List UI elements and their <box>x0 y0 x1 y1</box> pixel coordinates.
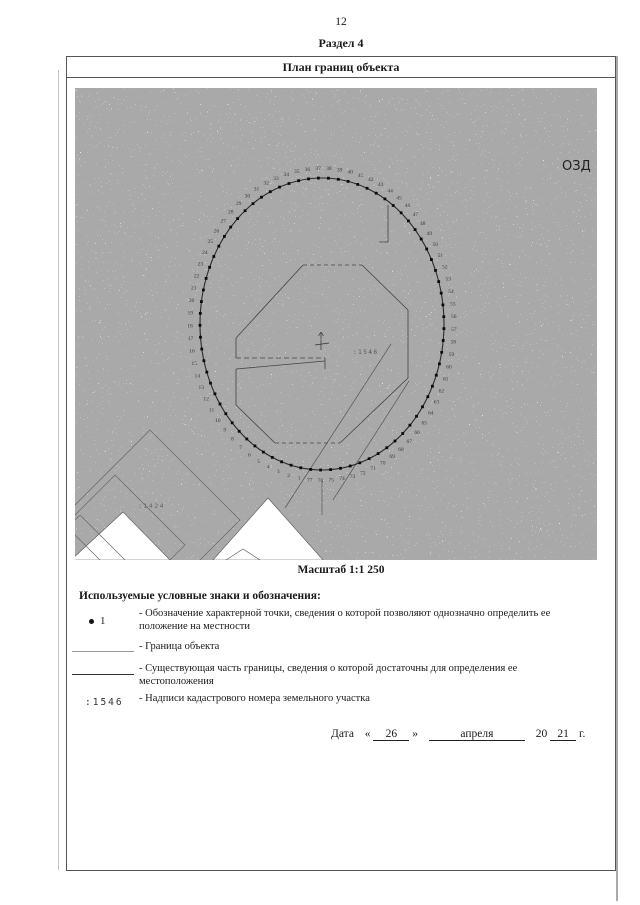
boundary-point-label: 52 <box>442 265 448 271</box>
boundary-point <box>254 445 257 448</box>
boundary-point-label: 51 <box>438 253 444 259</box>
boundary-point <box>224 412 227 415</box>
boundary-point <box>430 258 433 261</box>
boundary-point-label: 18 <box>187 323 193 329</box>
boundary-point <box>319 469 322 472</box>
boundary-point <box>271 456 274 459</box>
boundary-point-label: 71 <box>370 466 376 472</box>
boundary-point-label: 20 <box>189 298 195 304</box>
boundary-point <box>440 351 443 354</box>
boundary-point <box>442 304 445 307</box>
boundary-point-label: 70 <box>380 461 386 467</box>
date-century: 20 <box>536 728 548 740</box>
boundary-point <box>358 461 361 464</box>
map-corner-label: ОЗД <box>562 159 591 174</box>
boundary-point-label: 29 <box>236 201 242 207</box>
date-suffix: г. <box>579 728 585 740</box>
boundary-point <box>394 440 397 443</box>
boundary-point-label: 63 <box>434 400 440 406</box>
boundary-point-label: 72 <box>360 470 366 476</box>
cadastral-number-label-center: :1546 <box>353 349 379 356</box>
boundary-point-label: 41 <box>358 173 364 179</box>
legend-symbol-cadastral-number: :1546 <box>85 697 124 708</box>
boundary-point-label: 76 <box>318 478 324 484</box>
boundary-plan-map: :1424 <box>75 88 597 560</box>
boundary-point <box>407 220 410 223</box>
boundary-point <box>420 238 423 241</box>
boundary-point-label: 8 <box>231 437 234 443</box>
boundary-point <box>421 405 424 408</box>
legend-heading: Используемые условные знаки и обозначени… <box>79 590 321 602</box>
boundary-point <box>349 465 352 468</box>
boundary-point-label: 33 <box>273 176 279 182</box>
boundary-point <box>238 430 241 433</box>
boundary-point-label: 46 <box>405 203 411 209</box>
boundary-point <box>347 180 350 183</box>
boundary-point <box>297 179 300 182</box>
boundary-point-label: 65 <box>422 421 428 427</box>
boundary-point-label: 11 <box>209 408 215 414</box>
legend-symbol-point: 1 <box>89 615 106 627</box>
document-page: 12 Раздел 4 План границ объекта <box>0 0 640 905</box>
boundary-point-label: 44 <box>387 188 393 194</box>
date-close-quote: » <box>412 728 418 740</box>
boundary-point-label: 24 <box>202 250 208 256</box>
boundary-point <box>229 226 232 229</box>
boundary-point-label: 34 <box>283 172 289 178</box>
boundary-point-label: 66 <box>414 430 420 436</box>
boundary-point <box>223 235 226 238</box>
boundary-point <box>245 438 248 441</box>
boundary-point-label: 16 <box>189 349 195 355</box>
boundary-point-label: 12 <box>203 397 209 403</box>
scale-label: Масштаб 1:1 250 <box>67 564 615 576</box>
boundary-point <box>392 204 395 207</box>
boundary-point <box>299 466 302 469</box>
boundary-point-label: 53 <box>446 277 452 283</box>
boundary-point-label: 42 <box>368 177 374 183</box>
boundary-point-label: 3 <box>277 469 280 475</box>
boundary-point <box>200 300 203 303</box>
boundary-point-label: 19 <box>188 311 194 317</box>
boundary-point <box>205 277 208 280</box>
boundary-point-label: 36 <box>305 167 311 173</box>
boundary-point <box>327 177 330 180</box>
date-open-quote: « <box>365 728 371 740</box>
boundary-point <box>208 266 211 269</box>
boundary-point-label: 67 <box>407 439 413 445</box>
boundary-point <box>442 339 445 342</box>
boundary-point <box>200 348 203 351</box>
boundary-point <box>236 217 239 220</box>
boundary-point <box>278 186 281 189</box>
boundary-point <box>431 385 434 388</box>
boundary-point-label: 17 <box>188 336 194 342</box>
boundary-point <box>414 228 417 231</box>
boundary-point <box>202 289 205 292</box>
boundary-point <box>356 183 359 186</box>
boundary-point-label: 31 <box>254 187 260 193</box>
boundary-point-label: 48 <box>420 221 426 227</box>
boundary-point <box>401 432 404 435</box>
boundary-point-label: 28 <box>228 209 234 215</box>
boundary-point <box>307 178 310 181</box>
legend-item-point-desc: - Обозначение характерной точки, сведени… <box>139 608 591 633</box>
boundary-point <box>214 392 217 395</box>
boundary-point <box>203 359 206 362</box>
boundary-point-label: 26 <box>214 228 220 234</box>
date-year-value: 21 <box>550 728 576 741</box>
boundary-point <box>339 467 342 470</box>
boundary-point-label: 60 <box>446 365 452 371</box>
boundary-point-label: 50 <box>433 242 439 248</box>
boundary-point <box>368 457 371 460</box>
boundary-point <box>400 211 403 214</box>
boundary-point-label: 57 <box>451 327 457 333</box>
boundary-point <box>280 460 283 463</box>
boundary-point-label: 6 <box>248 452 251 458</box>
boundary-point <box>199 324 202 327</box>
boundary-point <box>269 190 272 193</box>
legend-item-existing-desc: - Существующая часть границы, сведения о… <box>139 663 591 688</box>
boundary-point-label: 40 <box>347 170 353 176</box>
boundary-point-label: 54 <box>448 289 454 295</box>
scan-artifact-line <box>616 56 618 901</box>
boundary-point-label: 59 <box>449 352 455 358</box>
boundary-point-label: 61 <box>443 377 449 383</box>
boundary-point <box>209 382 212 385</box>
boundary-point-label: 37 <box>315 166 321 172</box>
boundary-point <box>375 192 378 195</box>
boundary-point-label: 14 <box>195 373 201 379</box>
boundary-point <box>377 452 380 455</box>
boundary-point <box>426 395 429 398</box>
plan-title: План границ объекта <box>67 57 615 78</box>
boundary-point-label: 38 <box>326 166 332 172</box>
boundary-point-label: 47 <box>413 212 419 218</box>
boundary-point-label: 5 <box>257 459 260 465</box>
boundary-point <box>409 424 412 427</box>
boundary-point-label: 2 <box>287 473 290 479</box>
boundary-point-label: 15 <box>191 361 197 367</box>
boundary-point-label: 62 <box>439 388 445 394</box>
boundary-point <box>317 177 320 180</box>
legend-item-cadastral-desc: - Надписи кадастрового номера земельного… <box>139 693 591 706</box>
scan-artifact-line <box>58 70 59 870</box>
boundary-point <box>309 468 312 471</box>
legend-symbol-point-number: 1 <box>100 615 106 627</box>
boundary-point <box>252 202 255 205</box>
boundary-point-label: 27 <box>220 219 226 225</box>
date-line: Дата « 26 » апреля 20 21 г. <box>331 728 585 741</box>
boundary-point <box>199 336 202 339</box>
boundary-point-label: 7 <box>239 445 242 451</box>
legend-symbol-boundary-line <box>72 651 134 652</box>
boundary-point <box>443 327 446 330</box>
boundary-point-label: 77 <box>307 477 313 483</box>
boundary-point <box>244 209 247 212</box>
boundary-point-label: 35 <box>294 169 300 175</box>
boundary-point <box>231 421 234 424</box>
boundary-point-label: 55 <box>450 302 456 308</box>
boundary-point-label: 73 <box>350 474 356 480</box>
boundary-point-label: 30 <box>245 193 251 199</box>
boundary-point-label: 32 <box>263 181 269 187</box>
boundary-point <box>415 415 418 418</box>
boundary-point <box>366 187 369 190</box>
boundary-point-label: 49 <box>427 231 433 237</box>
boundary-point <box>199 312 202 315</box>
boundary-point <box>435 374 438 377</box>
boundary-point <box>212 255 215 258</box>
date-day-value: 26 <box>373 728 409 741</box>
boundary-point <box>337 178 340 181</box>
boundary-point-label: 10 <box>215 418 221 424</box>
boundary-point-label: 69 <box>389 454 395 460</box>
date-month-value: апреля <box>429 728 525 741</box>
legend-item-boundary-desc: - Граница объекта <box>139 641 591 654</box>
boundary-point <box>438 363 441 366</box>
boundary-point-label: 25 <box>208 239 214 245</box>
boundary-point <box>442 315 445 318</box>
section-heading: Раздел 4 <box>66 36 616 51</box>
boundary-point-label: 9 <box>223 428 226 434</box>
boundary-point-label: 58 <box>450 340 456 346</box>
plan-frame: План границ объекта <box>66 56 616 871</box>
boundary-point-label: 1 <box>298 476 301 482</box>
boundary-point-label: 68 <box>398 447 404 453</box>
date-label: Дата <box>331 728 354 740</box>
boundary-point <box>288 182 291 185</box>
boundary-point-label: 4 <box>267 465 270 471</box>
boundary-point <box>437 280 440 283</box>
boundary-point <box>217 245 220 248</box>
boundary-point <box>384 198 387 201</box>
map-image: :1424 <box>75 88 597 560</box>
boundary-point <box>385 446 388 449</box>
boundary-point <box>329 468 332 471</box>
boundary-point <box>290 464 293 467</box>
boundary-point <box>262 451 265 454</box>
boundary-point-label: 64 <box>428 411 434 417</box>
boundary-point-label: 74 <box>339 476 345 482</box>
boundary-point-label: 23 <box>198 261 204 267</box>
boundary-point-label: 22 <box>194 273 200 279</box>
boundary-point-label: 43 <box>378 182 384 188</box>
boundary-point <box>434 269 437 272</box>
boundary-point-label: 39 <box>337 167 343 173</box>
boundary-point <box>440 292 443 295</box>
boundary-point-label: 56 <box>451 314 457 320</box>
map-stipple-texture <box>75 88 597 560</box>
boundary-point-label: 13 <box>199 385 205 391</box>
cadastral-number-label-sw: :1424 <box>138 502 165 510</box>
boundary-point-label: 21 <box>191 286 197 292</box>
boundary-point-label: 75 <box>329 478 335 484</box>
page-number: 12 <box>66 16 616 28</box>
boundary-point <box>219 403 222 406</box>
boundary-point <box>205 371 208 374</box>
legend-symbol-existing-line <box>72 674 134 675</box>
boundary-point <box>425 248 428 251</box>
point-dot-icon <box>89 619 94 624</box>
boundary-point <box>260 196 263 199</box>
boundary-point-label: 45 <box>396 195 402 201</box>
